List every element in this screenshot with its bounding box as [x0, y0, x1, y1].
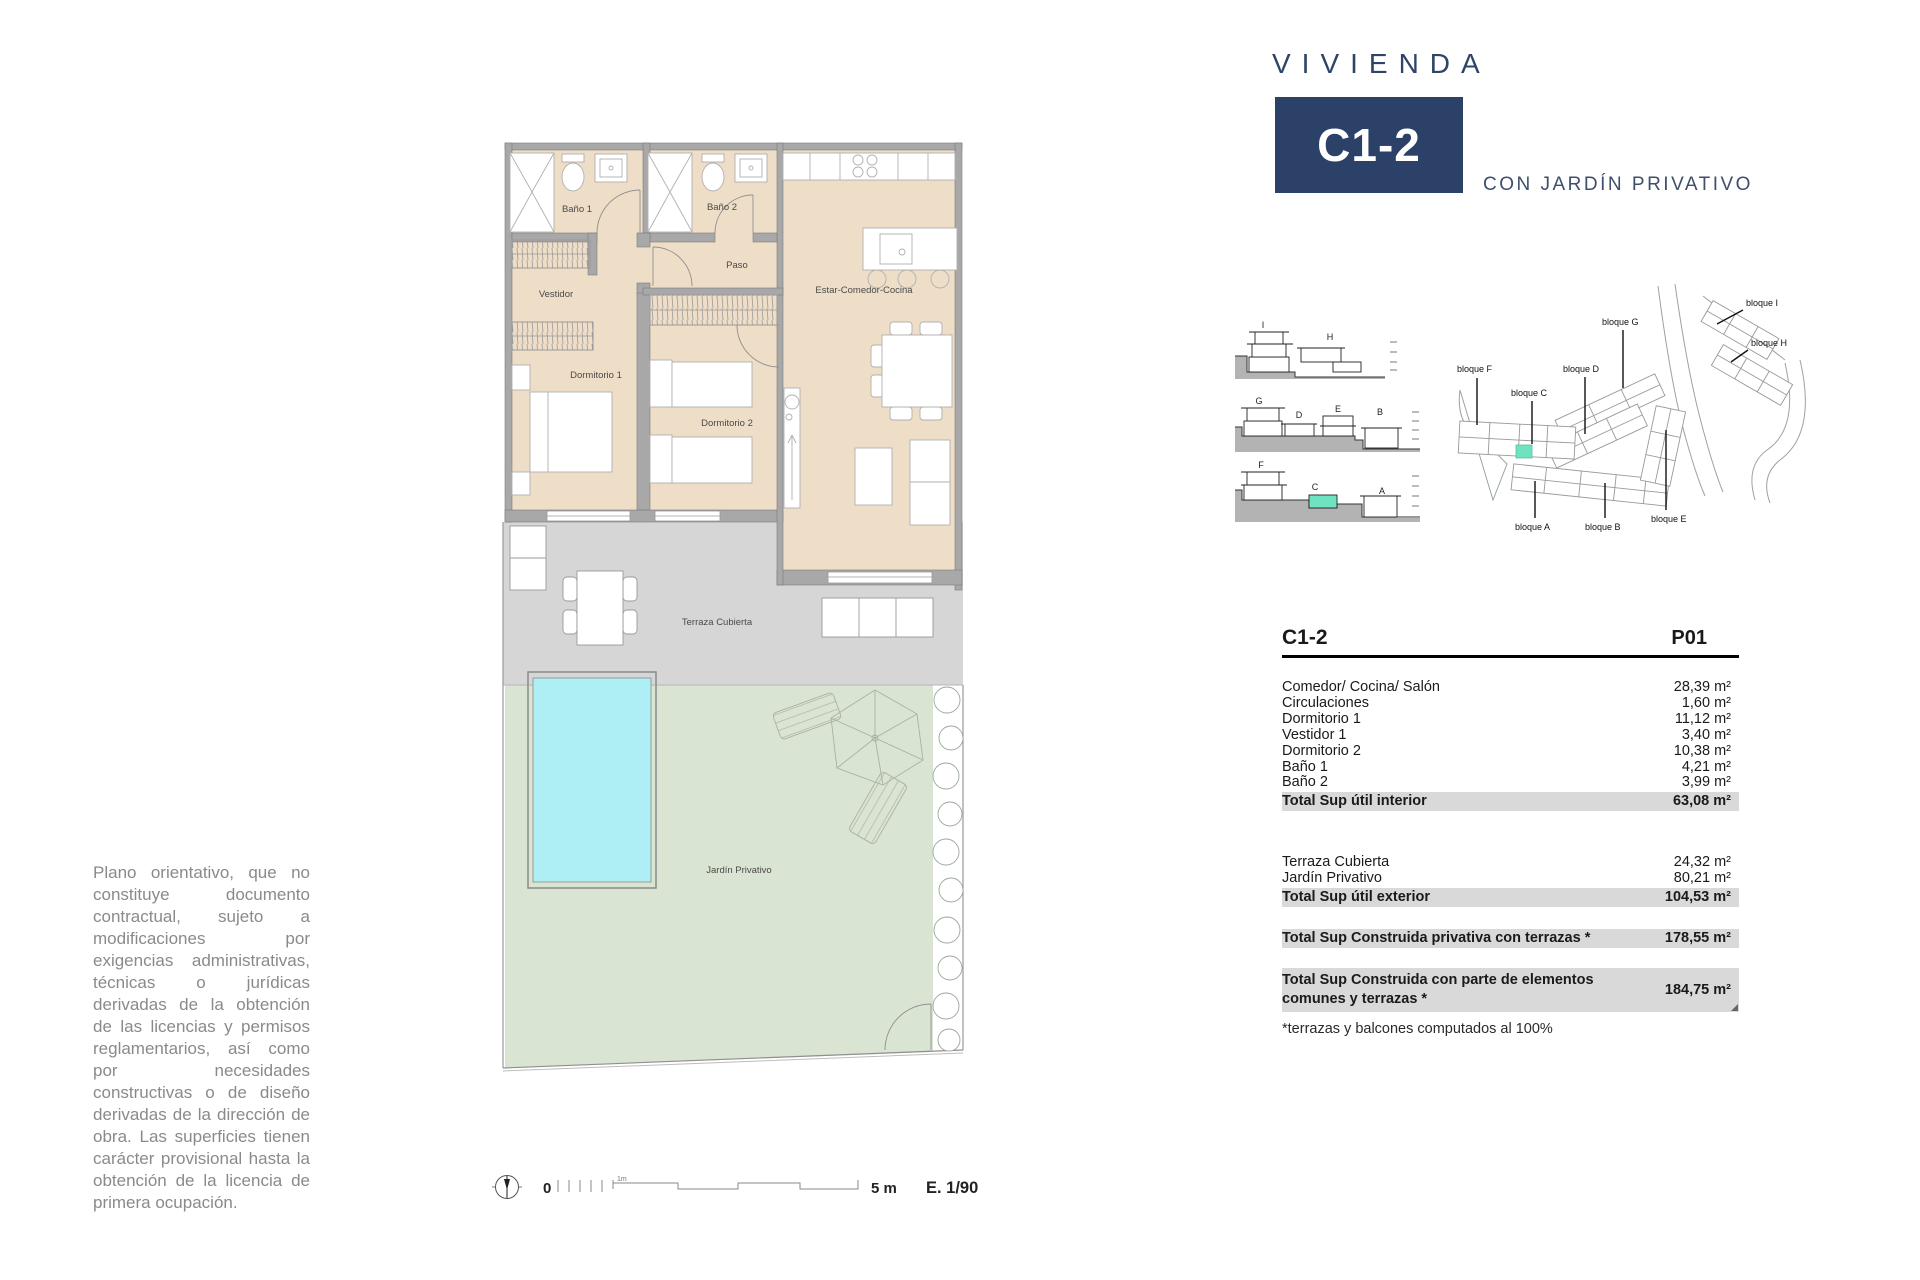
row-value: 10,38 m² [1674, 744, 1739, 760]
floor-plan: Baño 1 Baño 2 Paso Vestidor Estar-Comedo… [500, 140, 970, 1075]
section-label-C: C [1312, 482, 1319, 492]
exterior-total-row: Total Sup útil exterior 104,53 m² [1282, 888, 1739, 907]
table-row: Dormitorio 2 10,38 m² [1282, 744, 1739, 760]
site-label-bloque-b: bloque B [1585, 522, 1621, 532]
total-value: 178,55 m² [1665, 929, 1739, 948]
scale-5m-label: 5 m [871, 1180, 897, 1197]
site-label-bloque-f: bloque F [1457, 364, 1493, 374]
table-row: Baño 1 4,21 m² [1282, 760, 1739, 776]
section-label-B: B [1377, 407, 1383, 417]
scale-bar: 0 1m 5 m E. 1/90 [488, 1168, 988, 1218]
total-label: Total Sup útil exterior [1282, 888, 1430, 907]
row-label: Baño 2 [1282, 775, 1328, 791]
scale-bar-line [613, 1180, 858, 1189]
row-value: 11,12 m² [1675, 712, 1739, 728]
room-label-vestidor: Vestidor [539, 289, 573, 300]
table-floor-code: P01 [1671, 627, 1707, 650]
total-value: 104,53 m² [1665, 888, 1739, 907]
site-label-bloque-e: bloque E [1651, 514, 1687, 524]
built-private-row: Total Sup Construida privativa con terra… [1282, 929, 1739, 948]
table-unit-code: C1-2 [1282, 626, 1328, 650]
room-label-estar: Estar-Comedor-Cocina [815, 285, 913, 296]
table-row: Jardín Privativo 80,21 m² [1282, 871, 1739, 887]
section-label-G: G [1255, 396, 1262, 406]
row-value: 24,32 m² [1674, 855, 1739, 871]
table-footnote: *terrazas y balcones computados al 100% [1282, 1021, 1739, 1037]
scale-ratio-label: E. 1/90 [926, 1179, 978, 1197]
total-value: 63,08 m² [1673, 792, 1739, 811]
row-value: 4,21 m² [1682, 760, 1739, 776]
total-label: Total Sup Construida con parte de elemen… [1282, 971, 1627, 1009]
interior-total-row: Total Sup útil interior 63,08 m² [1282, 792, 1739, 811]
section-label-F: F [1258, 460, 1264, 470]
unit-code-box: C1-2 [1275, 97, 1463, 193]
table-row: Circulaciones 1,60 m² [1282, 696, 1739, 712]
site-label-bloque-i: bloque I [1746, 298, 1778, 308]
row-value: 1,60 m² [1682, 696, 1739, 712]
room-label-jardin: Jardín Privativo [706, 865, 771, 876]
row-label: Comedor/ Cocina/ Salón [1282, 680, 1440, 696]
total-value: 184,75 m² [1665, 982, 1739, 998]
table-row: Dormitorio 1 11,12 m² [1282, 712, 1739, 728]
row-label: Jardín Privativo [1282, 871, 1382, 887]
hedge-trees [933, 687, 963, 1051]
section-label-D: D [1296, 410, 1303, 420]
row-label: Dormitorio 1 [1282, 712, 1361, 728]
room-label-dorm2: Dormitorio 2 [701, 418, 753, 429]
row-label: Dormitorio 2 [1282, 744, 1361, 760]
total-label: Total Sup Construida privativa con terra… [1282, 929, 1590, 948]
section-label-H: H [1327, 332, 1334, 342]
row-label: Circulaciones [1282, 696, 1369, 712]
room-label-dorm1: Dormitorio 1 [570, 370, 622, 381]
title-subtitle: CON JARDÍN PRIVATIVO [1483, 174, 1753, 196]
row-value: 28,39 m² [1674, 680, 1739, 696]
site-label-bloque-d: bloque D [1563, 364, 1600, 374]
section-diagrams: I H G D E B [1235, 300, 1435, 535]
site-plan: bloque F bloque C bloque D bloque G bloq… [1455, 268, 1830, 568]
site-label-bloque-h: bloque H [1751, 338, 1787, 348]
highlighted-unit-section [1309, 495, 1337, 508]
site-label-bloque-a: bloque A [1515, 522, 1550, 532]
table-row: Comedor/ Cocina/ Salón 28,39 m² [1282, 680, 1739, 696]
dining-furniture [871, 322, 952, 420]
row-value: 80,21 m² [1674, 871, 1739, 887]
section-label-E: E [1335, 404, 1341, 414]
room-label-bano1: Baño 1 [562, 204, 592, 215]
row-label: Terraza Cubierta [1282, 855, 1389, 871]
built-common-row: Total Sup Construida con parte de elemen… [1282, 968, 1739, 1012]
area-table: C1-2 P01 Comedor/ Cocina/ Salón 28,39 m²… [1282, 626, 1739, 1037]
title-kicker: VIVIENDA [1272, 48, 1491, 80]
area-table-header: C1-2 P01 [1282, 626, 1739, 658]
room-label-paso: Paso [726, 260, 748, 271]
site-label-bloque-g: bloque G [1602, 317, 1639, 327]
section-label-I: I [1262, 320, 1265, 330]
north-arrow-icon [492, 1176, 522, 1199]
pool [528, 672, 656, 888]
section-label-A: A [1379, 486, 1385, 496]
scale-1m-label: 1m [617, 1176, 627, 1183]
row-label: Vestidor 1 [1282, 728, 1347, 744]
room-label-terraza: Terraza Cubierta [682, 617, 753, 628]
row-value: 3,40 m² [1682, 728, 1739, 744]
unit-code: C1-2 [1317, 118, 1421, 172]
fold-corner-icon [1731, 1004, 1738, 1011]
disclaimer-text: Plano orientativo, que no constituye doc… [93, 862, 310, 1214]
table-row: Terraza Cubierta 24,32 m² [1282, 855, 1739, 871]
scale-zero-label: 0 [543, 1180, 551, 1197]
row-value: 3,99 m² [1682, 775, 1739, 791]
table-row: Baño 2 3,99 m² [1282, 775, 1739, 791]
table-row: Vestidor 1 3,40 m² [1282, 728, 1739, 744]
site-label-bloque-c: bloque C [1511, 388, 1548, 398]
scale-ticks [558, 1180, 602, 1192]
row-label: Baño 1 [1282, 760, 1328, 776]
room-label-bano2: Baño 2 [707, 202, 737, 213]
total-label: Total Sup útil interior [1282, 792, 1427, 811]
brochure-page: Baño 1 Baño 2 Paso Vestidor Estar-Comedo… [0, 0, 1920, 1280]
highlighted-unit-site [1516, 445, 1532, 458]
